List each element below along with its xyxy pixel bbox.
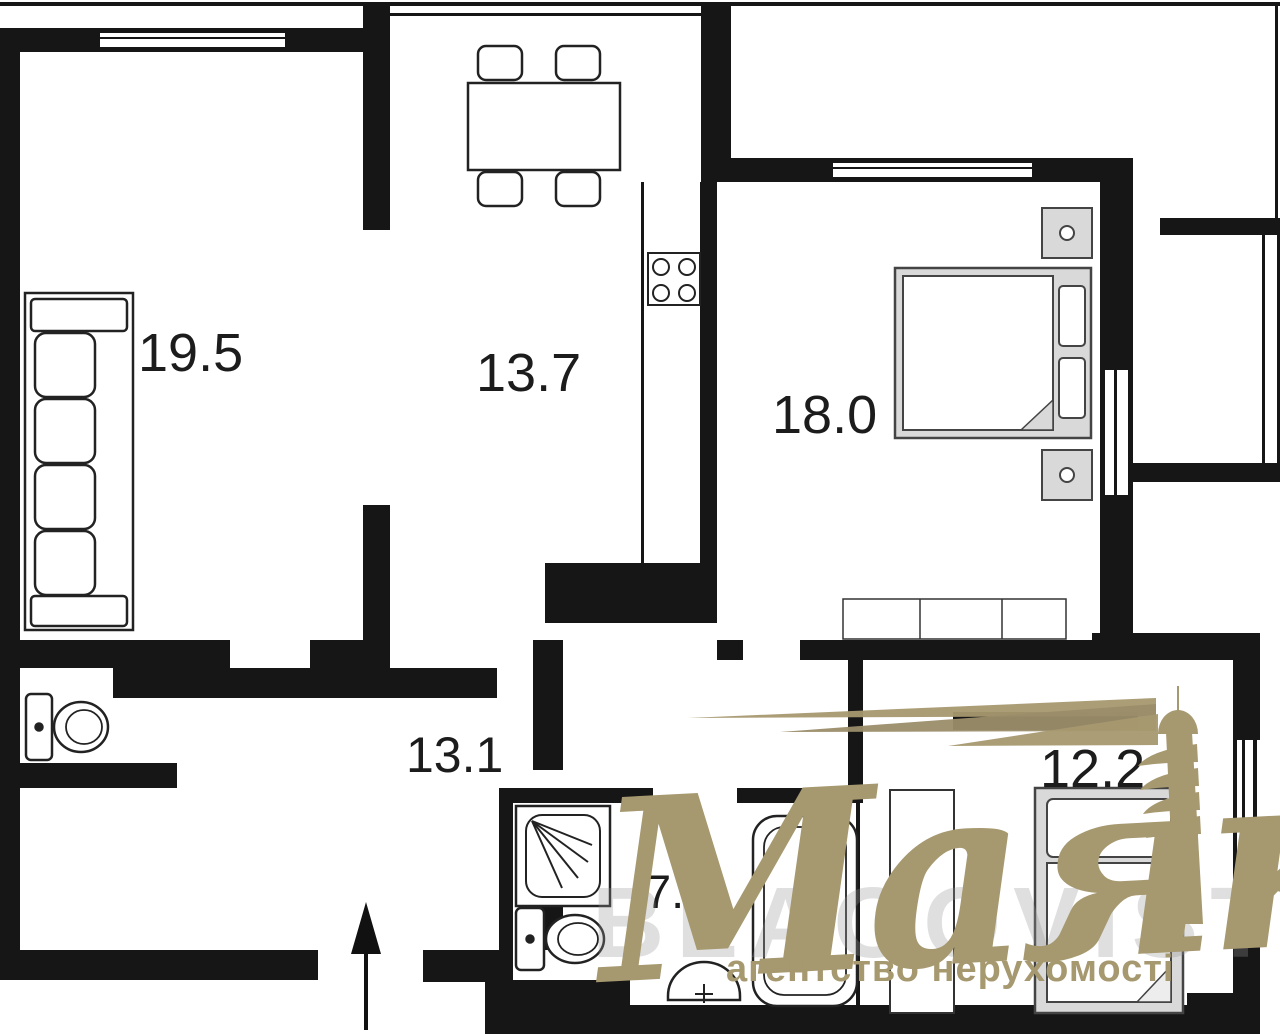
floor-plan: 19.5 13.7 18.0 13.1 7.2 12.2 BLAGOVIST М… <box>0 0 1280 1034</box>
watermark-tagline: агентство нерухомості <box>726 948 1174 991</box>
